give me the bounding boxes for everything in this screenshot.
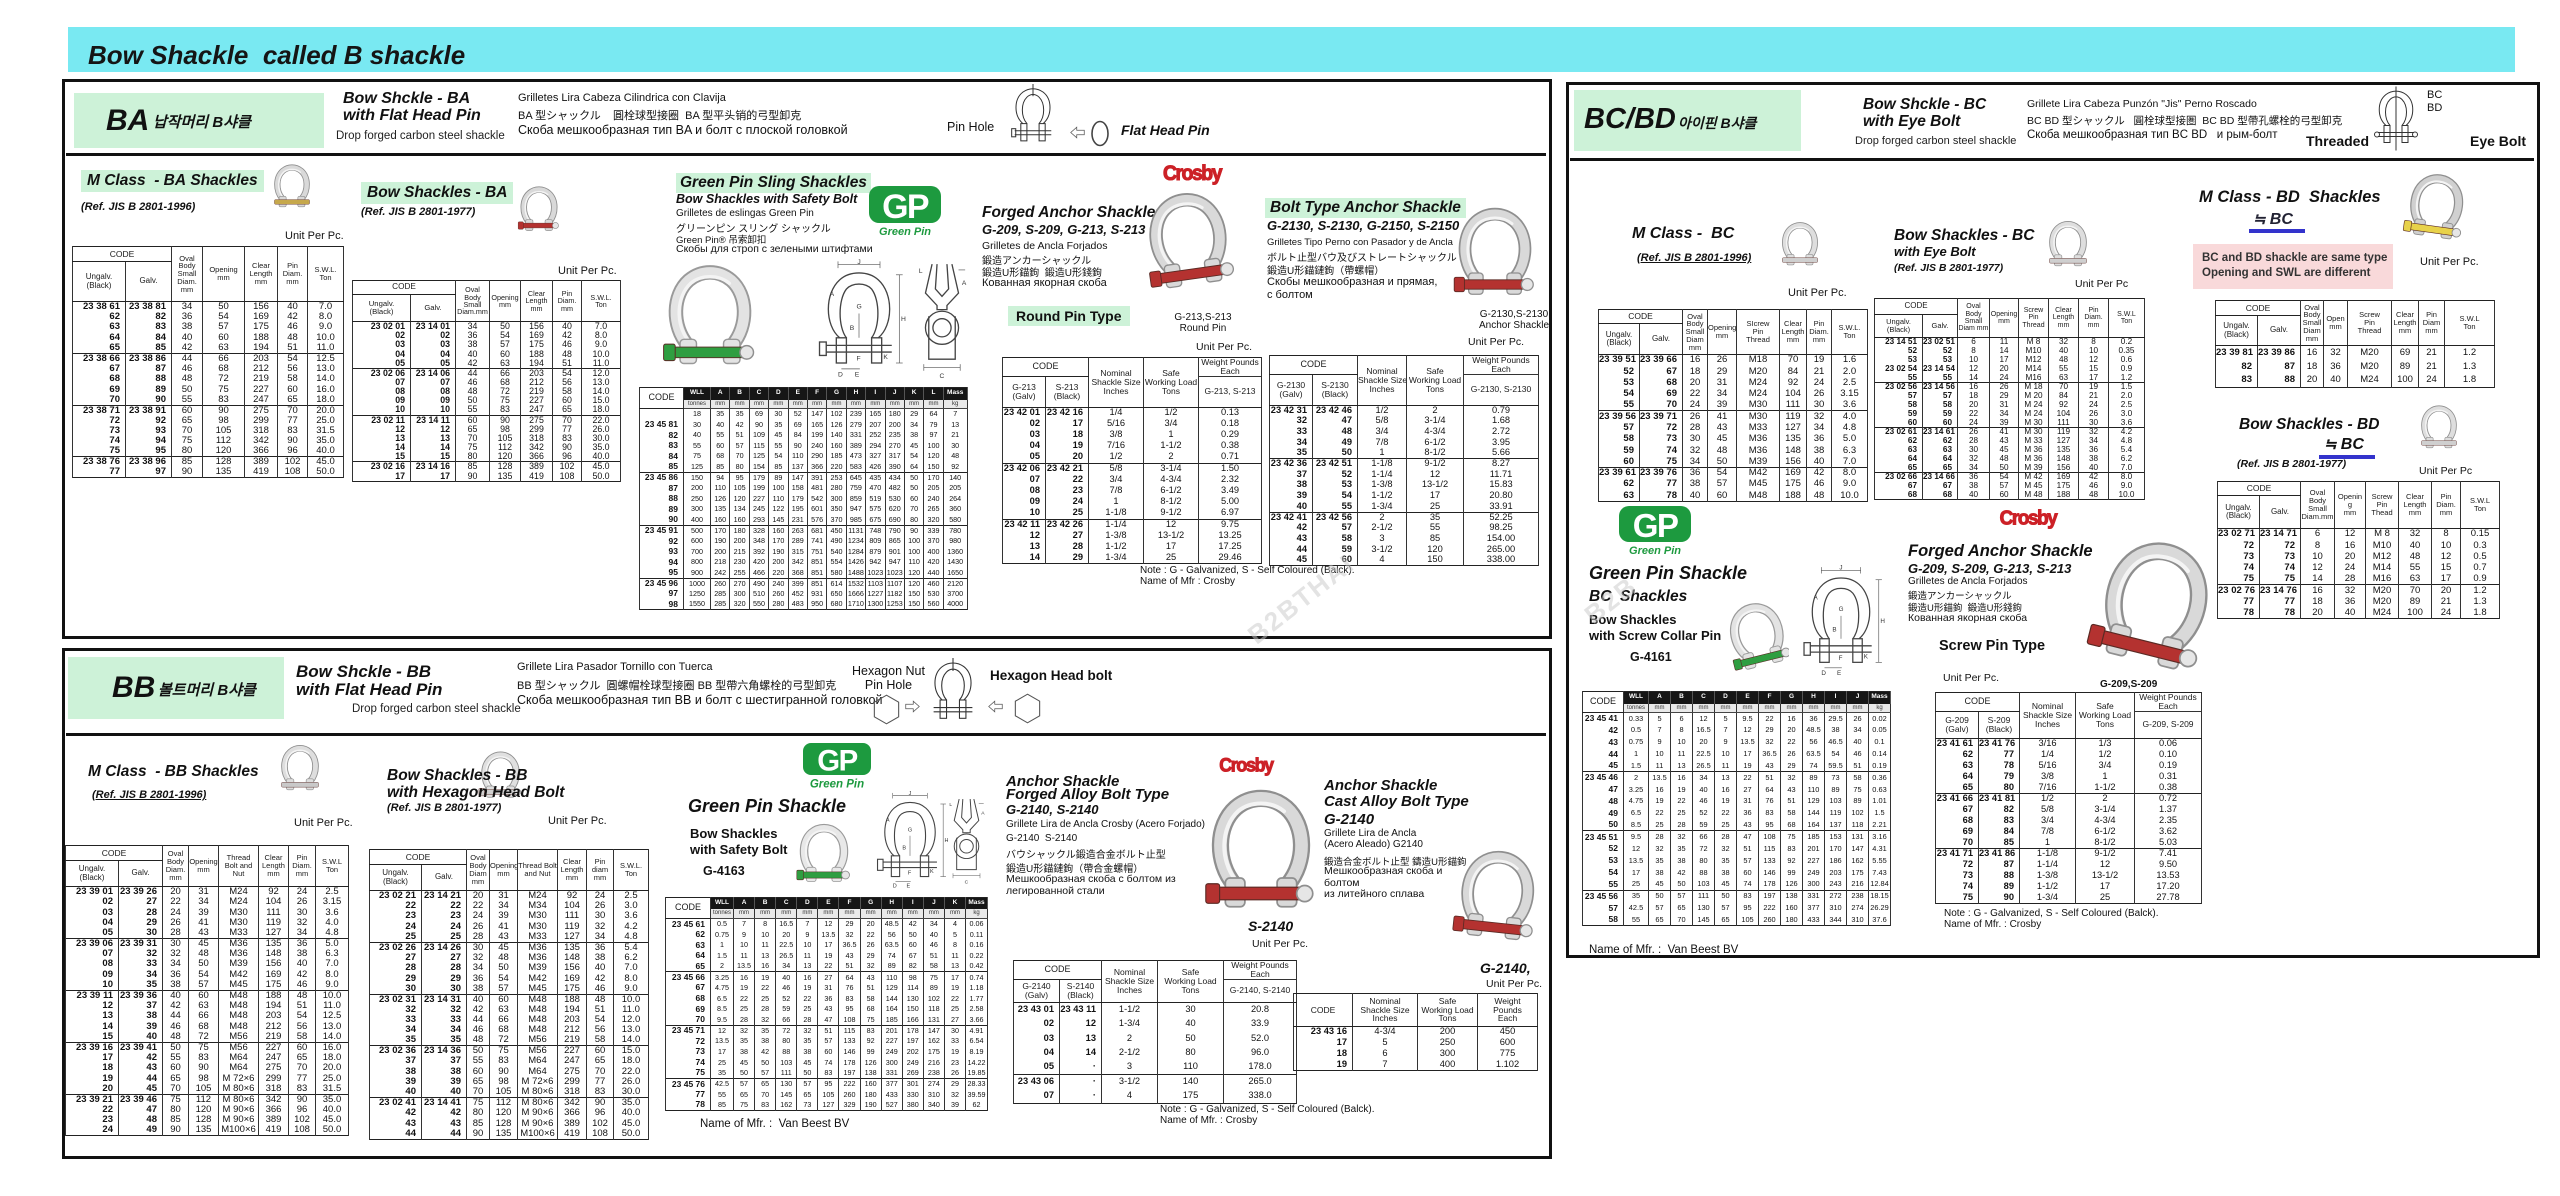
svg-text:E: E [855,371,860,378]
svg-text:K: K [1864,653,1869,660]
svg-text:A: A [962,280,967,287]
svg-text:Crosby: Crosby [1219,754,1275,776]
svg-text:GP: GP [882,188,929,226]
svg-text:D: D [1821,670,1826,677]
svg-text:C: C [965,880,969,886]
svg-text:L: L [919,268,923,275]
svg-text:L: L [949,802,952,808]
svg-text:J: J [857,259,860,266]
svg-text:Green Pin: Green Pin [879,226,931,238]
svg-text:A: A [981,810,985,816]
svg-text:B: B [850,325,855,332]
svg-text:G: G [856,303,861,310]
svg-text:D: D [893,884,897,890]
svg-text:G: G [908,828,912,834]
svg-text:B: B [1832,627,1836,634]
svg-text:GP: GP [817,745,857,778]
svg-text:C: C [940,373,945,380]
svg-text:J: J [1839,565,1842,572]
svg-text:K: K [883,354,888,361]
svg-text:F: F [856,355,860,362]
svg-text:GP: GP [1633,508,1678,545]
svg-text:Green Pin: Green Pin [810,779,864,791]
svg-text:G: G [1839,606,1844,613]
svg-text:J: J [909,791,912,797]
svg-text:H: H [1880,618,1885,625]
svg-text:A: A [1813,594,1818,601]
svg-text:H: H [901,316,906,323]
svg-text:Crosby: Crosby [2000,507,2058,530]
svg-text:Green Pin: Green Pin [1629,545,1681,557]
svg-text:Crosby: Crosby [1163,162,1223,185]
svg-text:K: K [930,869,934,875]
svg-text:A: A [830,291,835,298]
svg-text:A: A [886,817,890,823]
svg-text:B: B [902,846,906,852]
svg-text:E: E [907,884,911,890]
svg-text:F: F [908,870,912,876]
svg-text:D: D [838,371,843,378]
svg-text:F: F [1839,655,1843,662]
svg-text:E: E [1837,670,1841,677]
